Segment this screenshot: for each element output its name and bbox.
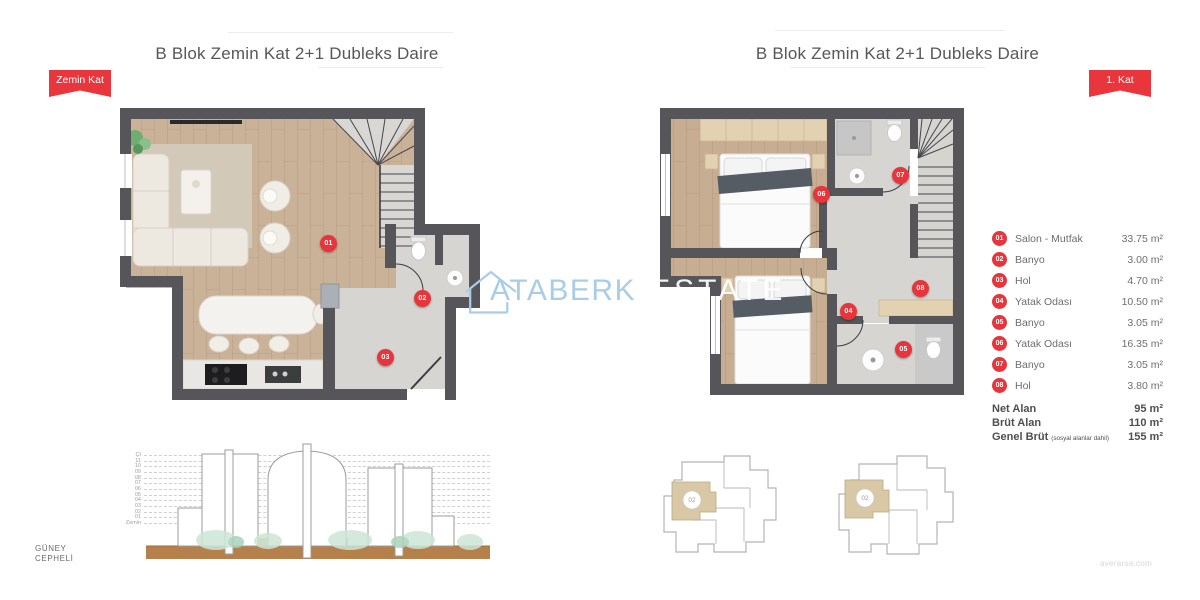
room-label: Banyo [1015, 359, 1045, 371]
summary-row: Brüt Alan 110 m² [992, 417, 1163, 431]
room-label: Yatak Odası [1015, 296, 1072, 308]
room-marker: 02 [414, 290, 431, 307]
room-marker: 04 [840, 303, 857, 320]
summary-note: (sosyal alanlar dahil) [1051, 435, 1109, 442]
summary-value: 110 m² [1129, 417, 1163, 429]
floorplan-sheet: B Blok Zemin Kat 2+1 Dubleks Daire B Blo… [0, 0, 1200, 600]
room-number-badge: 07 [992, 357, 1007, 372]
room-label: Banyo [1015, 254, 1045, 266]
summary-label: Genel Brüt [992, 431, 1048, 443]
divider-line [775, 30, 1005, 31]
room-area: 10.50 m² [1122, 296, 1163, 308]
legend-row: 06 Yatak Odası 16.35 m² [992, 333, 1163, 354]
ground-floor-drawing [115, 108, 480, 400]
first-floor-drawing [660, 108, 975, 395]
coffee-table [181, 170, 211, 214]
ground-floor-ribbon: Zemin Kat [49, 70, 111, 97]
ground-floor-plan: 01 02 03 [115, 108, 480, 400]
first-floor-plan: 04 05 06 07 08 [660, 108, 975, 395]
room-area: 3.05 m² [1127, 317, 1163, 329]
room-number-badge: 01 [992, 231, 1007, 246]
keyplan-unit-label: 02 [684, 492, 700, 508]
south-facade-elevation: Çt 11 10 09 08 07 06 05 04 03 02 01 Zemi… [118, 438, 490, 570]
legend-row: 07 Banyo 3.05 m² [992, 354, 1163, 375]
legend-row: 03 Hol 4.70 m² [992, 270, 1163, 291]
bed [705, 154, 825, 248]
room-number-badge: 04 [992, 294, 1007, 309]
watermark-brand-text: ATABERK [490, 274, 636, 308]
room-area: 3.00 m² [1127, 254, 1163, 266]
bed [722, 276, 825, 384]
legend-row: 05 Banyo 3.05 m² [992, 312, 1163, 333]
room-area: 3.80 m² [1127, 380, 1163, 392]
room-label: Banyo [1015, 317, 1045, 329]
toilet [411, 237, 426, 242]
room-marker: 07 [892, 167, 909, 184]
room-number-badge: 02 [992, 252, 1007, 267]
left-plan-title: B Blok Zemin Kat 2+1 Dubleks Daire [37, 44, 557, 64]
room-label: Hol [1015, 275, 1031, 287]
facade-drawing [118, 438, 490, 570]
room-number-badge: 05 [992, 315, 1007, 330]
room-marker: 06 [813, 186, 830, 203]
first-floor-ribbon: 1. Kat [1089, 70, 1151, 97]
summary-value: 155 m² [1128, 431, 1163, 443]
legend-row: 02 Banyo 3.00 m² [992, 249, 1163, 270]
room-number-badge: 03 [992, 273, 1007, 288]
room-marker: 08 [912, 280, 929, 297]
right-plan-title: B Blok Zemin Kat 2+1 Dubleks Daire [640, 44, 1155, 64]
keyplan-first-floor [827, 448, 967, 560]
facade-label: GÜNEY CEPHELİ [35, 544, 73, 565]
summary-row: Genel Brüt (sosyal alanlar dahil) 155 m² [992, 431, 1163, 445]
keyplan-ground-floor [652, 448, 792, 560]
fridge [321, 284, 339, 308]
keyplan-unit-label: 02 [857, 490, 873, 506]
room-area: 4.70 m² [1127, 275, 1163, 287]
legend-row: 04 Yatak Odası 10.50 m² [992, 291, 1163, 312]
room-marker: 01 [320, 235, 337, 252]
room-number-badge: 06 [992, 336, 1007, 351]
room-area: 3.05 m² [1127, 359, 1163, 371]
room-legend: 01 Salon - Mutfak 33.75 m² 02 Banyo 3.00… [992, 228, 1163, 445]
room-marker: 05 [895, 341, 912, 358]
legend-row: 08 Hol 3.80 m² [992, 375, 1163, 396]
area-summary: Net Alan 95 m² Brüt Alan 110 m² Genel Br… [992, 403, 1163, 445]
room-area: 16.35 m² [1122, 338, 1163, 350]
room-number-badge: 08 [992, 378, 1007, 393]
room-marker: 03 [377, 349, 394, 366]
divider-line [228, 32, 453, 33]
divider-line [318, 67, 443, 68]
summary-row: Net Alan 95 m² [992, 403, 1163, 417]
kitchen-counter [183, 360, 323, 389]
legend-row: 01 Salon - Mutfak 33.75 m² [992, 228, 1163, 249]
room-label: Yatak Odası [1015, 338, 1072, 350]
tv [170, 120, 242, 124]
summary-label: Brüt Alan [992, 417, 1041, 429]
room-area: 33.75 m² [1122, 233, 1163, 245]
dining-table [199, 296, 317, 334]
room-label: Salon - Mutfak [1015, 233, 1083, 245]
room-label: Hol [1015, 380, 1031, 392]
footer-url: averarsa.com [1100, 559, 1152, 568]
summary-value: 95 m² [1134, 403, 1163, 415]
summary-label: Net Alan [992, 403, 1036, 415]
divider-line [790, 67, 985, 68]
